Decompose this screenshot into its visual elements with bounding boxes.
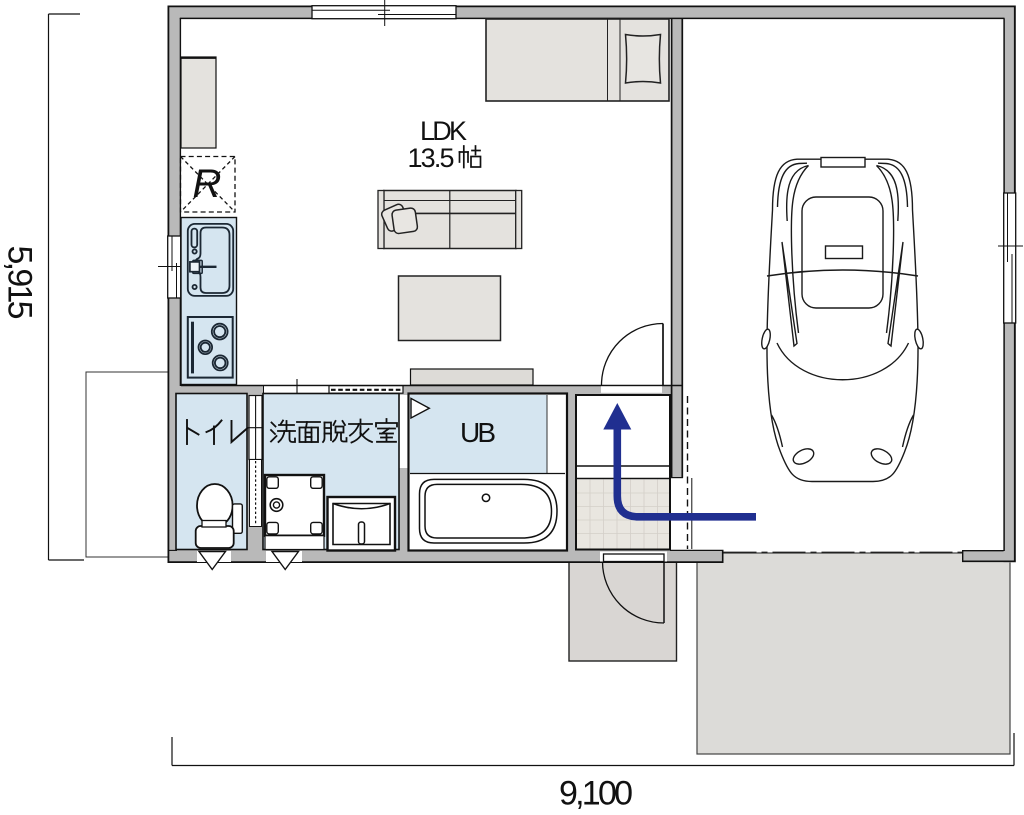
- svg-text:UB: UB: [460, 417, 496, 448]
- svg-text:13.5: 13.5: [408, 143, 455, 173]
- svg-text:LDK: LDK: [420, 116, 467, 146]
- svg-text:5,915: 5,915: [1, 246, 39, 320]
- svg-text:R: R: [193, 162, 222, 206]
- svg-text:9,100: 9,100: [559, 775, 633, 813]
